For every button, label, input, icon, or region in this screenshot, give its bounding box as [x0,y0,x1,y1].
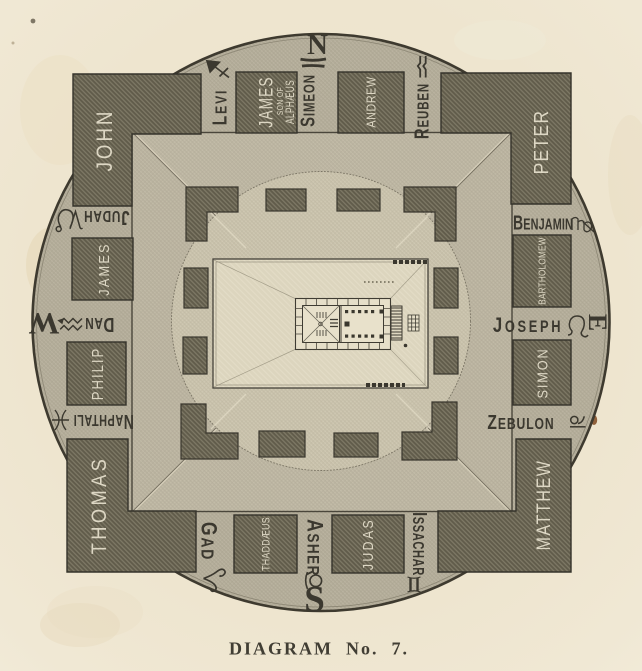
svg-text:PHILIP: PHILIP [90,347,107,400]
svg-text:ASHER: ASHER [302,519,326,577]
svg-text:DIAGRAM No. 7.: DIAGRAM No. 7. [229,639,409,659]
svg-text:BARTHOLOMEW: BARTHOLOMEW [536,237,548,304]
svg-text:JAMES: JAMES [255,76,277,127]
svg-text:JUDAS: JUDAS [360,518,376,570]
svg-text:THADDÆUS: THADDÆUS [261,517,273,571]
svg-text:MATTHEW: MATTHEW [533,459,555,550]
svg-text:PETER: PETER [531,110,554,175]
svg-text:JAMES: JAMES [95,242,112,296]
svg-text:JOHN: JOHN [93,109,117,172]
svg-text:ANDREW: ANDREW [365,76,379,127]
svg-text:THOMAS: THOMAS [88,456,112,555]
svg-text:SON OF: SON OF [275,87,285,115]
svg-text:GAD: GAD [196,522,220,561]
svg-text:SIMON: SIMON [533,347,550,398]
svg-text:E: E [583,314,612,331]
svg-text:JOSEPH: JOSEPH [493,314,563,337]
svg-text:N: N [307,29,328,61]
svg-text:LEVI: LEVI [209,89,231,125]
svg-text:W: W [29,307,60,342]
